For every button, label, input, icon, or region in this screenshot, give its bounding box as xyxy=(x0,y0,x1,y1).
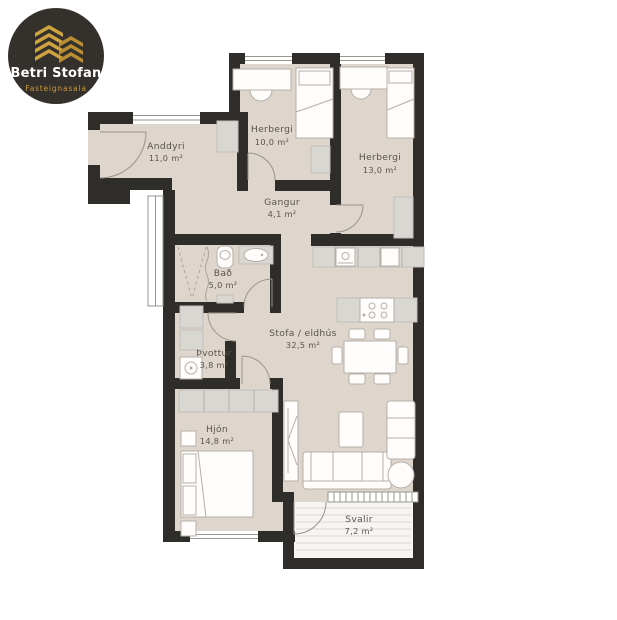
wardrobe-stofa xyxy=(284,401,298,481)
toilet xyxy=(217,246,233,268)
dining-table xyxy=(344,341,396,373)
window-balcony-slider xyxy=(328,492,418,502)
area-anddyri: 11,0 m² xyxy=(149,153,183,163)
label-bad: Bað xyxy=(214,268,233,279)
desk-herbergi1 xyxy=(233,69,291,90)
oven xyxy=(336,248,355,266)
sink xyxy=(239,246,273,264)
floor-plan: Anddyri 11,0 m² Herbergi 10,0 m² Herberg… xyxy=(0,0,617,620)
closet-anddyri xyxy=(217,121,238,152)
bed-herbergi2 xyxy=(387,68,414,138)
area-hjon: 14,8 m² xyxy=(200,436,234,446)
closet-herbergi1 xyxy=(311,146,330,173)
window-left-strip xyxy=(148,196,163,306)
label-herbergi1: Herbergi xyxy=(251,124,293,135)
window-hjon xyxy=(190,531,258,542)
chaise xyxy=(387,401,415,459)
coffee-table xyxy=(339,412,363,447)
label-anddyri: Anddyri xyxy=(147,141,185,152)
label-stofa: Stofa / eldhús xyxy=(269,328,337,339)
desk-herbergi2 xyxy=(340,67,388,89)
area-herbergi2: 13,0 m² xyxy=(363,165,397,175)
bed-hjon xyxy=(181,451,253,517)
window-anddyri xyxy=(133,112,200,124)
area-thvottur: 3,8 m² xyxy=(200,360,229,370)
cabinet-thvottur-1 xyxy=(180,306,203,328)
area-herbergi1: 10,0 m² xyxy=(255,137,289,147)
side-table xyxy=(388,462,414,488)
label-hjon: Hjón xyxy=(206,424,228,435)
nightstand-1 xyxy=(181,431,196,446)
nightstand-2 xyxy=(181,521,196,536)
bed-herbergi1 xyxy=(296,68,333,138)
label-herbergi2: Herbergi xyxy=(359,152,401,163)
floor-plan-page: { "logo": { "brand": "Betri Stofan", "ta… xyxy=(0,0,617,620)
window-herbergi2 xyxy=(340,53,385,64)
kitchen-sink xyxy=(381,248,399,266)
label-gangur: Gangur xyxy=(264,197,300,208)
bath-mat xyxy=(217,295,233,303)
cabinet-thvottur-2 xyxy=(180,330,203,350)
closet-herbergi2 xyxy=(394,197,413,238)
sofa xyxy=(303,452,391,489)
area-gangur: 4,1 m² xyxy=(268,209,297,219)
kitchen-island xyxy=(337,298,417,322)
wardrobe-hjon xyxy=(179,390,278,412)
floor-gangur xyxy=(175,190,330,234)
kitchen-counter xyxy=(313,247,424,267)
area-bad: 5,0 m² xyxy=(209,280,238,290)
label-thvottur: Þvottur xyxy=(196,348,232,359)
window-herbergi1 xyxy=(245,53,292,64)
label-svalir: Svalir xyxy=(345,514,373,525)
area-svalir: 7,2 m² xyxy=(345,526,374,536)
area-stofa: 32,5 m² xyxy=(286,340,320,350)
